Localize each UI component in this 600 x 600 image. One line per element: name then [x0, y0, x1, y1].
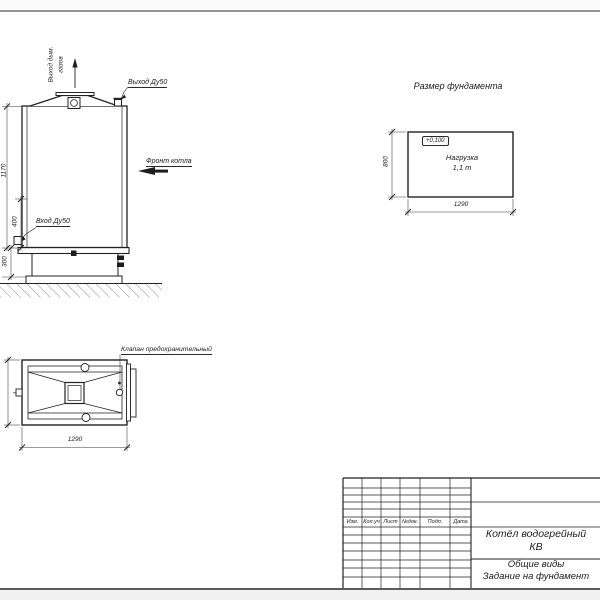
load-label-line2: 1,1 т — [430, 164, 494, 172]
elevation-mark: +0,100 — [422, 136, 449, 146]
doc-type-line1: Общие виды — [472, 560, 600, 570]
base-bolt — [117, 263, 124, 268]
dim-foundation-1290: 1290 — [443, 201, 479, 208]
dim-base-300: 300 — [1, 242, 8, 282]
front-view — [0, 58, 168, 298]
flue-flange — [56, 93, 94, 96]
ground-hatch — [0, 284, 162, 298]
front-of-boiler-label: Фронт котла — [146, 158, 192, 167]
dim-height-1170: 1170 — [0, 151, 7, 191]
stamp-col-ndok: №док. — [400, 519, 420, 525]
smoke-arrow — [72, 58, 77, 68]
dim-inlet-400: 400 — [11, 202, 18, 242]
doc-name-line2: КВ — [472, 542, 600, 554]
doc-name-line1: Котёл водогрейный — [472, 529, 600, 541]
load-label-line1: Нагрузка — [430, 154, 494, 162]
base-bolt — [117, 256, 124, 261]
stamp-col-izm: Изм. — [343, 519, 362, 525]
smoke-outlet-label-line1: Выход дым. — [47, 40, 54, 90]
outlet-fitting — [115, 100, 122, 107]
stamp-col-data: Дата — [450, 519, 471, 525]
dim-foundation-800: 800 — [382, 142, 389, 182]
inlet-label: Вход Ду50 — [36, 218, 70, 227]
outlet-label: Выход Ду50 — [128, 79, 167, 88]
safety-valve-label: Клапан предохранительный — [121, 346, 212, 355]
drawing-sheet: Выход дым. газов Выход Ду50 Фронт котла … — [0, 0, 600, 600]
dim-plan-1290: 1290 — [57, 436, 93, 443]
foundation-title: Размер фундамента — [403, 82, 513, 92]
doc-type-line2: Задание на фундамент — [472, 572, 600, 582]
drain-fitting — [71, 251, 77, 257]
page-margin-bottom — [0, 590, 600, 600]
safety-valve — [116, 389, 122, 395]
smoke-outlet-label-line2: газов — [57, 40, 64, 90]
stamp-col-list: Лист — [381, 519, 400, 525]
front-arrow — [138, 167, 155, 175]
stamp-col-podp: Подп. — [420, 519, 450, 525]
stamp-col-koluch: Кол.уч — [362, 519, 381, 525]
